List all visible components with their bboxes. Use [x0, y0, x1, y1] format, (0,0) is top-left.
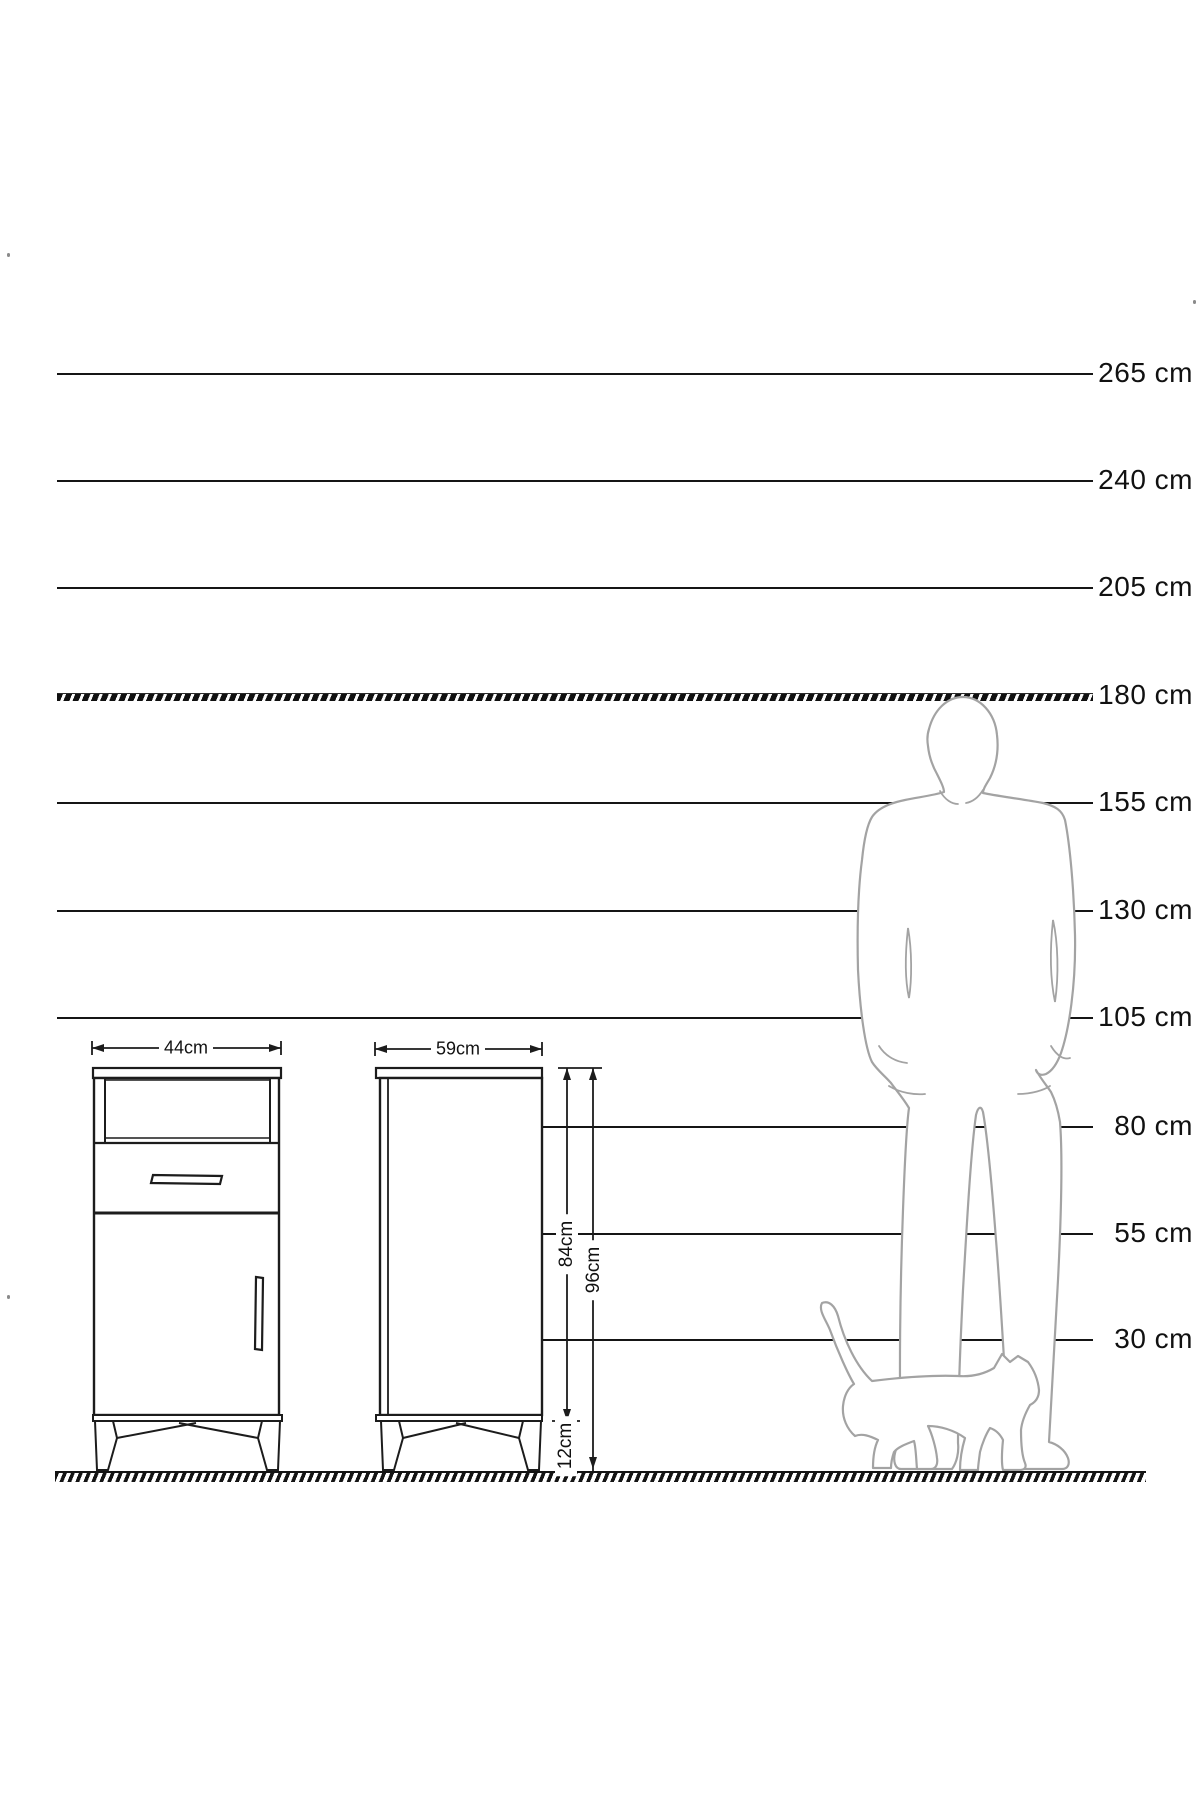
print-speck	[7, 253, 10, 257]
ground-line	[55, 1471, 1146, 1482]
front-width-label: 44cm	[159, 1038, 213, 1059]
side-body-height-label: 84cm	[556, 1214, 578, 1274]
front-view-legs	[95, 1421, 280, 1470]
side-view-legs	[381, 1421, 541, 1470]
side-leg-height-label: 12cm	[555, 1416, 577, 1476]
side-width-label: 59cm	[431, 1039, 485, 1060]
print-speck	[7, 1295, 10, 1299]
cabinet-front-view	[92, 1041, 282, 1470]
scene-drawing	[0, 0, 1200, 1800]
diagram-canvas: 265 cm240 cm205 cm180 cm155 cm130 cm105 …	[0, 0, 1200, 1800]
side-total-height-label: 96cm	[583, 1240, 605, 1300]
print-speck	[1193, 300, 1196, 304]
man-silhouette	[858, 697, 1075, 1469]
door-handle	[255, 1277, 263, 1350]
drawer-handle	[151, 1175, 222, 1184]
